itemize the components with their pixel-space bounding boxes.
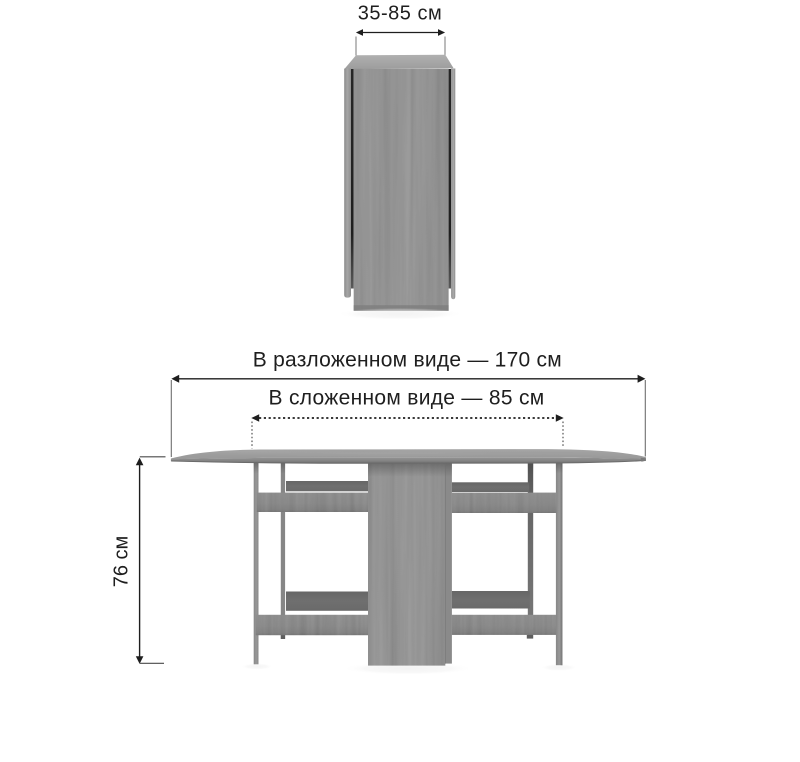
svg-text:76 см: 76 см <box>111 536 133 588</box>
svg-text:В разложенном виде — 170 см: В разложенном виде — 170 см <box>253 349 562 372</box>
svg-text:В сложенном виде — 85 см: В сложенном виде — 85 см <box>269 387 545 410</box>
svg-text:35-85 см: 35-85 см <box>358 3 442 25</box>
